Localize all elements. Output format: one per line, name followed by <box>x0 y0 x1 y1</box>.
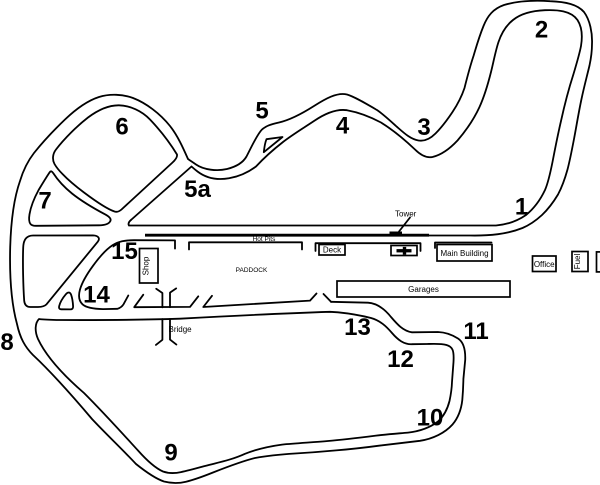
svg-text:14: 14 <box>83 282 110 309</box>
svg-text:Shop: Shop <box>142 256 151 275</box>
svg-text:13: 13 <box>344 314 371 341</box>
svg-text:6: 6 <box>115 114 128 141</box>
svg-text:15: 15 <box>111 238 138 265</box>
svg-text:4: 4 <box>336 113 350 140</box>
svg-text:Tower: Tower <box>395 210 417 219</box>
svg-text:Garages: Garages <box>408 285 439 294</box>
svg-text:Bridge: Bridge <box>169 325 193 334</box>
svg-text:Fuel: Fuel <box>573 253 582 269</box>
svg-text:5: 5 <box>255 98 268 125</box>
svg-text:2: 2 <box>535 17 548 44</box>
svg-text:12: 12 <box>387 346 414 373</box>
svg-text:Office: Office <box>534 260 555 269</box>
svg-text:7: 7 <box>38 188 51 215</box>
svg-text:PADDOCK: PADDOCK <box>236 267 268 274</box>
svg-text:Main Building: Main Building <box>440 249 488 258</box>
svg-text:3: 3 <box>417 114 430 141</box>
svg-text:5a: 5a <box>184 176 211 203</box>
svg-text:9: 9 <box>164 440 177 467</box>
svg-text:11: 11 <box>463 318 488 345</box>
svg-text:1: 1 <box>515 194 528 221</box>
svg-text:8: 8 <box>0 329 13 356</box>
svg-text:Hot Pits: Hot Pits <box>253 236 277 243</box>
svg-text:Deck: Deck <box>323 246 342 255</box>
svg-text:10: 10 <box>417 405 444 432</box>
